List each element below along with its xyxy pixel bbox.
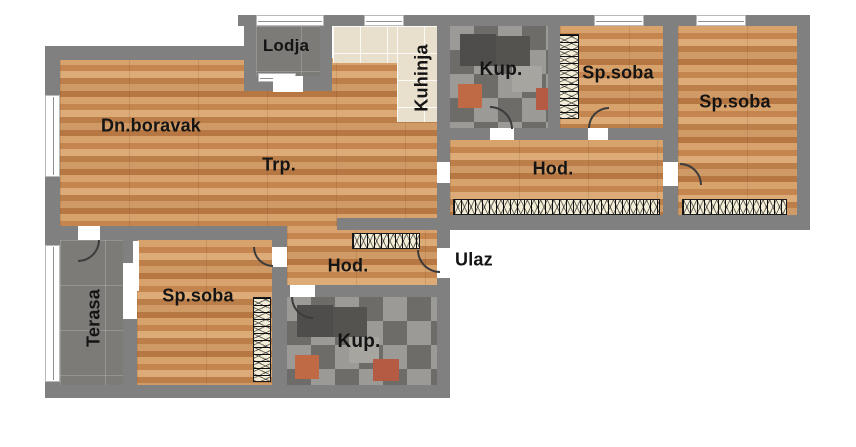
- room-label-bathroom-top: Kup.: [479, 59, 522, 81]
- wardrobe: [559, 34, 579, 119]
- window: [594, 15, 644, 26]
- wall: [663, 15, 678, 162]
- room-bedroom-bottom-floor: [137, 240, 272, 385]
- room-label-terrace: Terasa: [84, 289, 105, 347]
- window: [45, 95, 60, 177]
- door-opening-bathroom-top: [490, 128, 514, 140]
- room-label-kitchen: Kuhinja: [412, 44, 433, 111]
- door-opening-bathroom-bottom: [290, 285, 315, 297]
- passage-dining-hallway: [437, 162, 450, 183]
- wall: [437, 15, 450, 162]
- room-label-loggia: Lodja: [263, 36, 309, 56]
- wardrobe: [352, 233, 420, 249]
- wall: [437, 215, 810, 230]
- room-label-living: Dn.boravak: [101, 116, 201, 137]
- wall: [337, 218, 450, 230]
- room-label-bedroom-right: Sp.soba: [699, 92, 770, 113]
- door-leaf: [133, 241, 139, 291]
- wall: [272, 267, 287, 385]
- room-label-hallway-top: Hod.: [533, 159, 574, 180]
- room-label-dining: Trp.: [262, 155, 296, 176]
- window: [696, 15, 746, 26]
- wall: [244, 15, 256, 76]
- room-label-bathroom-bottom: Kup.: [337, 331, 380, 353]
- wardrobe: [682, 199, 787, 215]
- door-opening-bedroom-right: [663, 162, 678, 186]
- floorplan: Dn.boravak Trp. Lodja Kuhinja Kup. Sp.so…: [0, 0, 856, 447]
- room-label-bedroom-topmiddle: Sp.soba: [582, 63, 653, 84]
- room-bedroom-right-floor: [678, 26, 797, 215]
- room-label-hallway-bottom: Hod.: [328, 256, 369, 277]
- wall: [45, 46, 256, 60]
- door-opening-terrace: [78, 226, 100, 240]
- wall: [45, 385, 450, 398]
- window: [364, 15, 404, 26]
- door-opening-loggia: [273, 76, 303, 92]
- wall: [548, 15, 560, 140]
- wall: [437, 230, 450, 248]
- room-label-entrance: Ulaz: [455, 250, 493, 271]
- wall: [437, 278, 450, 398]
- window: [256, 15, 324, 26]
- door-opening-bedroom-topmiddle: [588, 128, 608, 140]
- room-label-bedroom-bottom: Sp.soba: [162, 286, 233, 307]
- wardrobe: [253, 297, 271, 382]
- wall: [797, 15, 810, 230]
- wall: [272, 228, 287, 247]
- door-opening-bedroom-bottom: [272, 247, 287, 267]
- wall: [437, 183, 450, 230]
- wall: [663, 186, 678, 215]
- window: [45, 245, 60, 382]
- wardrobe: [453, 199, 660, 215]
